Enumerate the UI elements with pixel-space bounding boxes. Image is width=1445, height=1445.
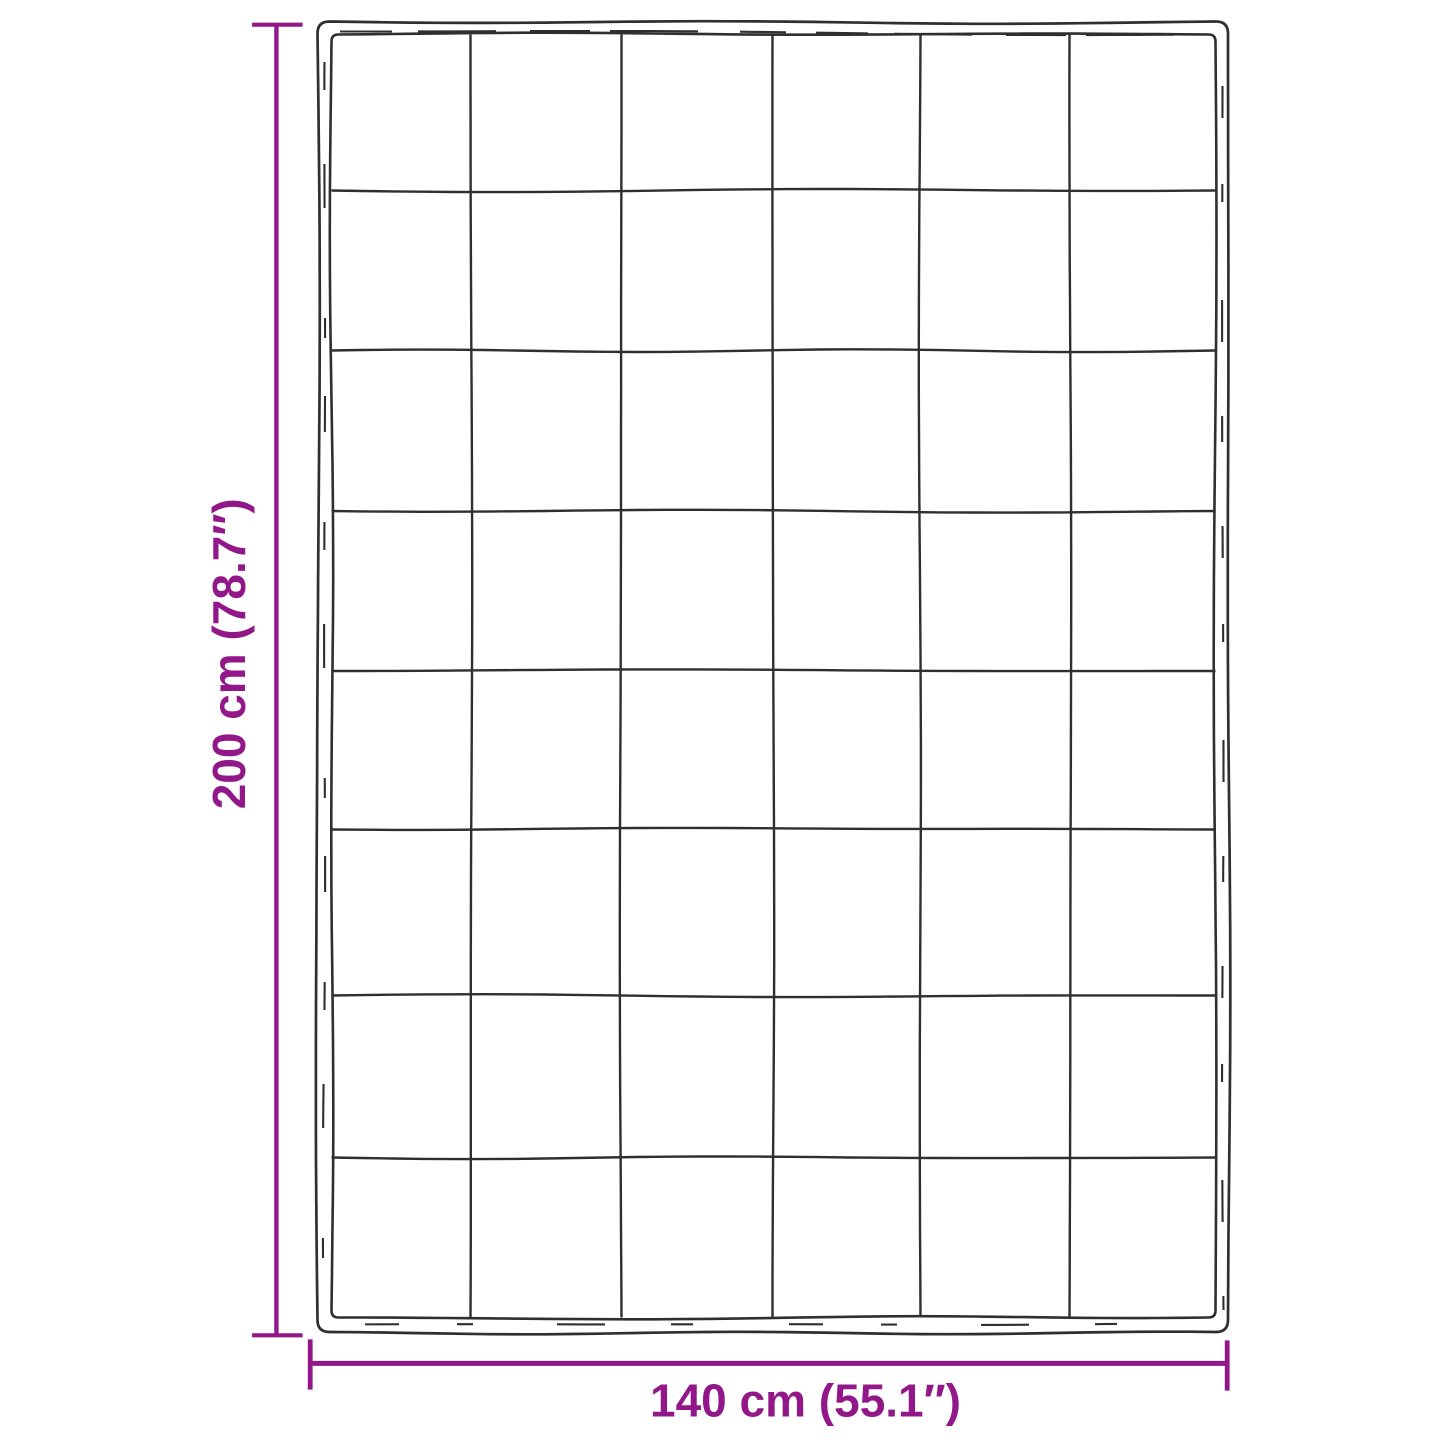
svg-text:200 cm (78.7″): 200 cm (78.7″) [203,498,255,809]
svg-text:140 cm (55.1″): 140 cm (55.1″) [650,1375,961,1427]
